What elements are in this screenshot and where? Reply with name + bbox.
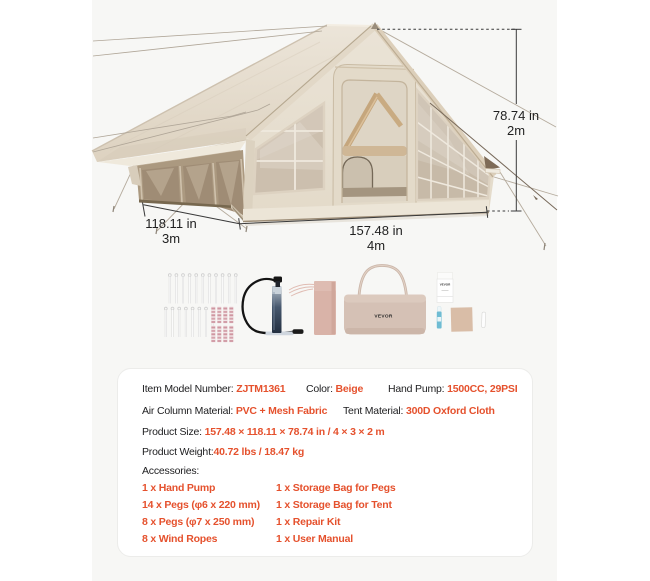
svg-text:VEVOR: VEVOR <box>374 314 393 320</box>
svg-text:VEVOR: VEVOR <box>440 283 451 287</box>
